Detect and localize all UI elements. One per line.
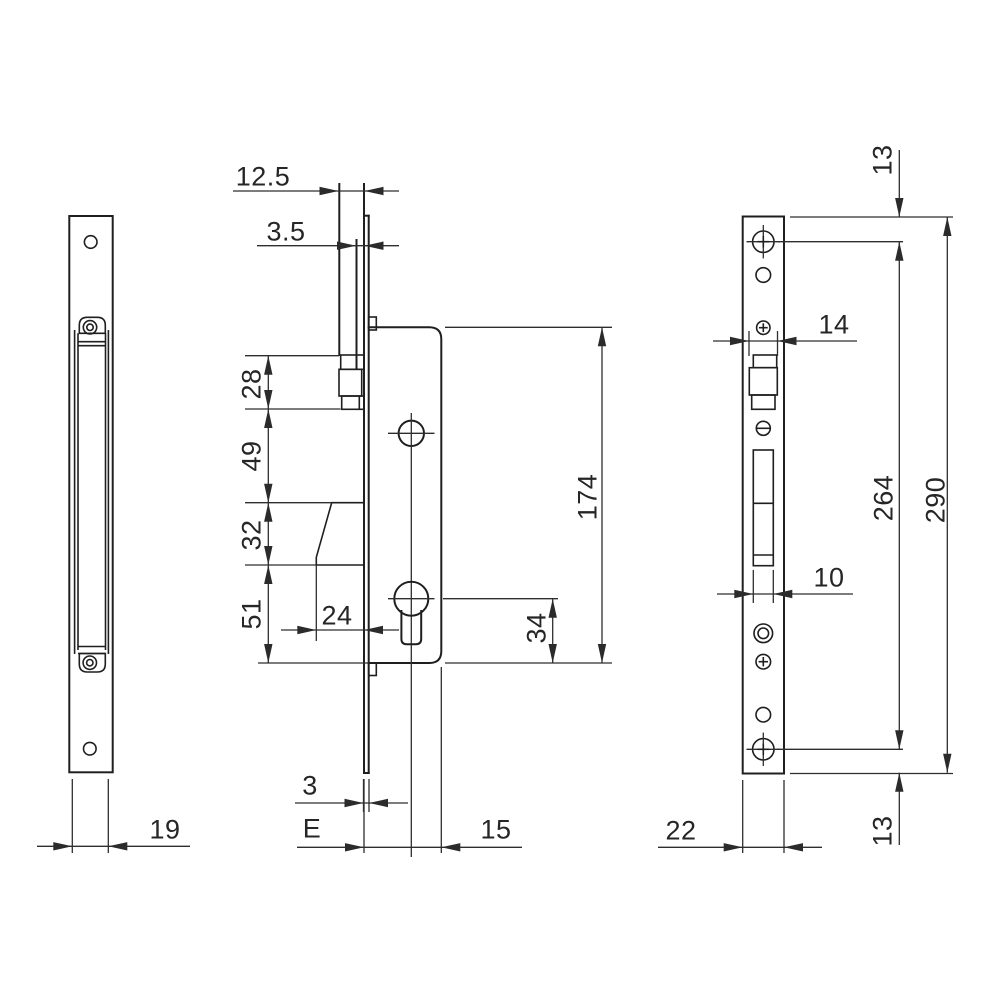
side-top-screw (83, 321, 96, 334)
lock-case-outline (369, 327, 442, 663)
dim-label-14: 14 (818, 312, 849, 339)
faceplate-screw-2 (757, 321, 770, 334)
faceplate-top-screw (747, 225, 781, 258)
dim-label-rod-wall: 3.5 (266, 219, 305, 246)
cylinder-ring (754, 624, 773, 643)
dim-label-13-top: 13 (870, 144, 897, 175)
drawing-canvas: 12.5 3.5 28 49 32 51 24 174 34 3 E 15 19… (0, 0, 1000, 1000)
dim-label-32: 32 (239, 519, 266, 550)
deadbolt-slot (753, 450, 773, 566)
dim-label-34: 34 (524, 612, 551, 643)
side-top-hole (84, 236, 97, 249)
front-view (233, 184, 612, 857)
dim-label-290: 290 (923, 477, 950, 524)
dim-label-15: 15 (480, 817, 511, 844)
side-rails (75, 330, 109, 654)
faceplate-screw-3 (756, 654, 771, 669)
faceplate-hole-1 (756, 268, 771, 283)
dim-label-24: 24 (321, 603, 352, 630)
side-view (37, 216, 190, 853)
faceplate-bottom-screw (747, 733, 781, 766)
side-bottom-hole (84, 742, 97, 755)
technical-drawing (0, 0, 1000, 1000)
dim-label-51: 51 (239, 598, 266, 629)
dim-label-264: 264 (871, 475, 898, 522)
dim-label-10: 10 (813, 565, 844, 592)
faceplate-hole-2 (756, 707, 771, 722)
dim-label-E: E (303, 816, 322, 843)
side-bottom-screw (83, 656, 96, 669)
dim-label-19: 19 (149, 817, 180, 844)
dim-label-rod-width: 12.5 (236, 164, 291, 191)
plate-bottom-lug (369, 663, 377, 676)
faceplate-outline (743, 217, 784, 774)
dim-label-22: 22 (665, 818, 696, 845)
faceplate-slotted-screw (756, 421, 771, 435)
dim-label-13-bottom: 13 (870, 815, 897, 846)
latch-bolt-front (749, 355, 777, 409)
dim-label-49: 49 (239, 440, 266, 471)
guard-nose (316, 503, 364, 565)
dim-label-3: 3 (302, 773, 318, 800)
dim-label-174: 174 (575, 474, 602, 521)
dim-label-28: 28 (239, 368, 266, 399)
latch-bolt-side (339, 355, 364, 409)
faceplate-view (658, 150, 953, 853)
